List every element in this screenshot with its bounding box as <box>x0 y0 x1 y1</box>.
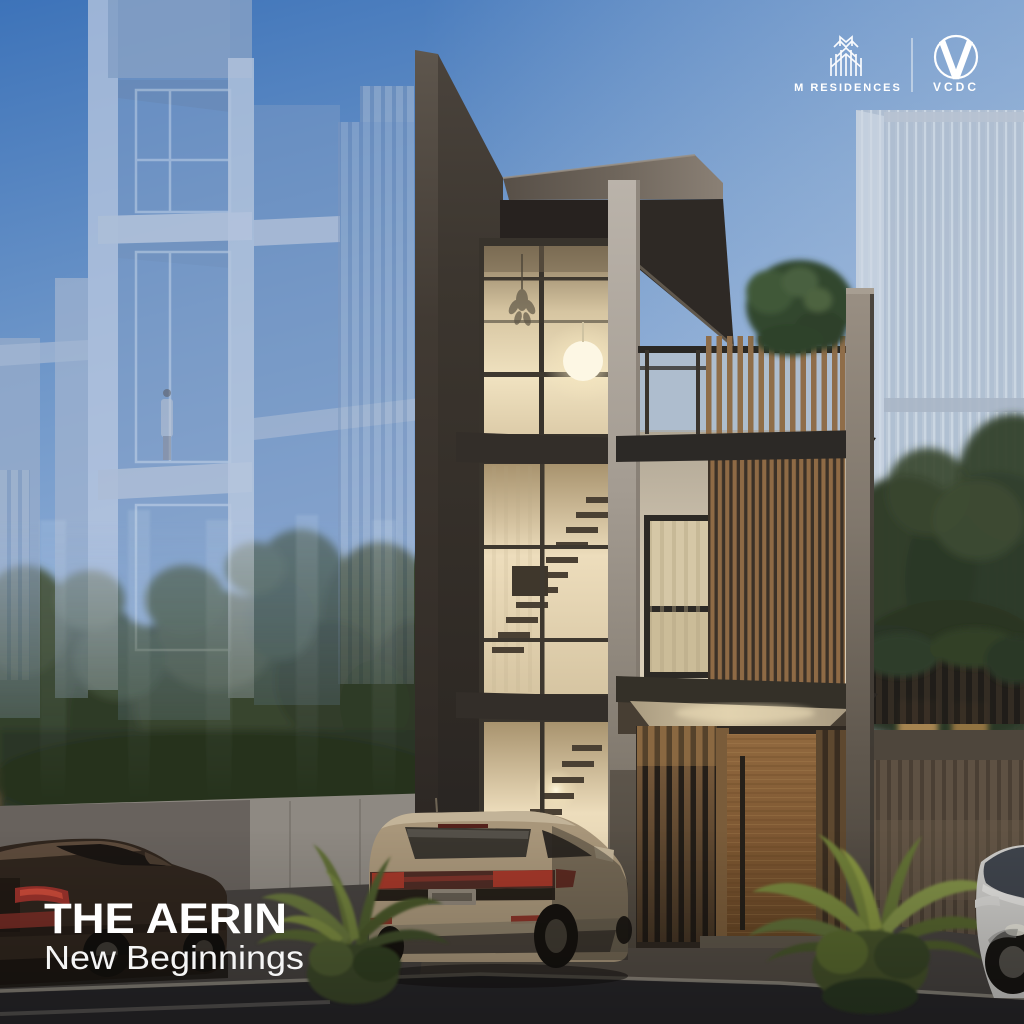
svg-text:THE AERIN: THE AERIN <box>44 895 287 943</box>
svg-text:M RESIDENCES: M RESIDENCES <box>794 82 902 94</box>
svg-text:New Beginnings: New Beginnings <box>44 939 304 976</box>
svg-text:VCDC: VCDC <box>933 80 979 94</box>
